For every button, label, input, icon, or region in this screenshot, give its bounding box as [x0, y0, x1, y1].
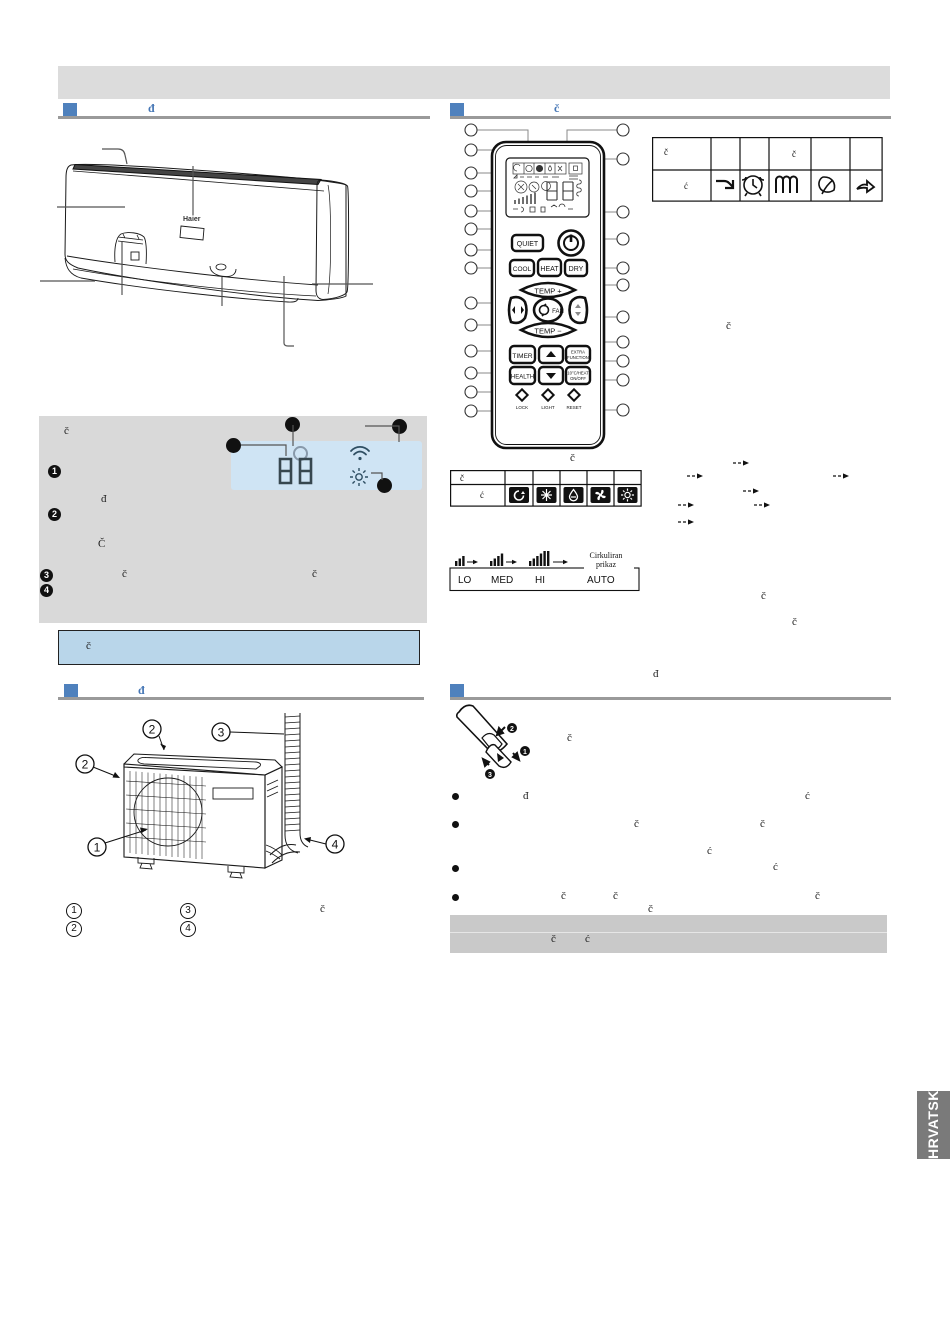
svg-text:Cirkuliran: Cirkuliran — [590, 551, 623, 560]
svg-text:prikaz: prikaz — [596, 560, 616, 569]
svg-text:LIGHT: LIGHT — [541, 405, 555, 410]
svg-text:ON/OFF: ON/OFF — [570, 376, 586, 381]
svg-text:1: 1 — [94, 841, 101, 855]
svg-text:2: 2 — [82, 758, 89, 772]
svg-text:MED: MED — [491, 575, 513, 586]
svg-text:LO: LO — [458, 575, 472, 586]
svg-text:DRY: DRY — [569, 266, 584, 273]
svg-text:4: 4 — [332, 838, 339, 852]
svg-text:č: č — [664, 147, 668, 157]
svg-text:HEALTH: HEALTH — [511, 375, 534, 381]
svg-text:10°C/HEAT: 10°C/HEAT — [567, 371, 589, 376]
svg-text:AUTO: AUTO — [587, 575, 615, 586]
svg-text:TEMP −: TEMP − — [534, 327, 562, 336]
svg-text:EXTRA: EXTRA — [571, 350, 585, 355]
svg-text:1: 1 — [523, 749, 527, 756]
svg-text:Haier: Haier — [183, 216, 201, 223]
svg-text:HI: HI — [535, 575, 545, 586]
svg-text:FAN: FAN — [552, 309, 564, 315]
svg-text:2: 2 — [149, 723, 156, 737]
svg-text:2: 2 — [510, 726, 514, 733]
svg-text:ć: ć — [480, 490, 484, 500]
svg-text:ć: ć — [684, 181, 688, 191]
svg-text:č: č — [460, 473, 464, 483]
svg-text:FUNCTION: FUNCTION — [567, 355, 589, 360]
svg-text:č: č — [792, 149, 796, 159]
svg-text:RESET: RESET — [566, 405, 581, 410]
svg-text:QUIET: QUIET — [517, 241, 539, 248]
svg-text:TEMP +: TEMP + — [534, 287, 562, 296]
svg-text:LOCK: LOCK — [516, 405, 528, 410]
svg-text:HEAT: HEAT — [540, 266, 559, 273]
svg-text:3: 3 — [488, 772, 492, 779]
svg-text:3: 3 — [218, 726, 225, 740]
svg-text:TIMER: TIMER — [512, 353, 533, 360]
svg-text:COOL: COOL — [513, 266, 532, 273]
